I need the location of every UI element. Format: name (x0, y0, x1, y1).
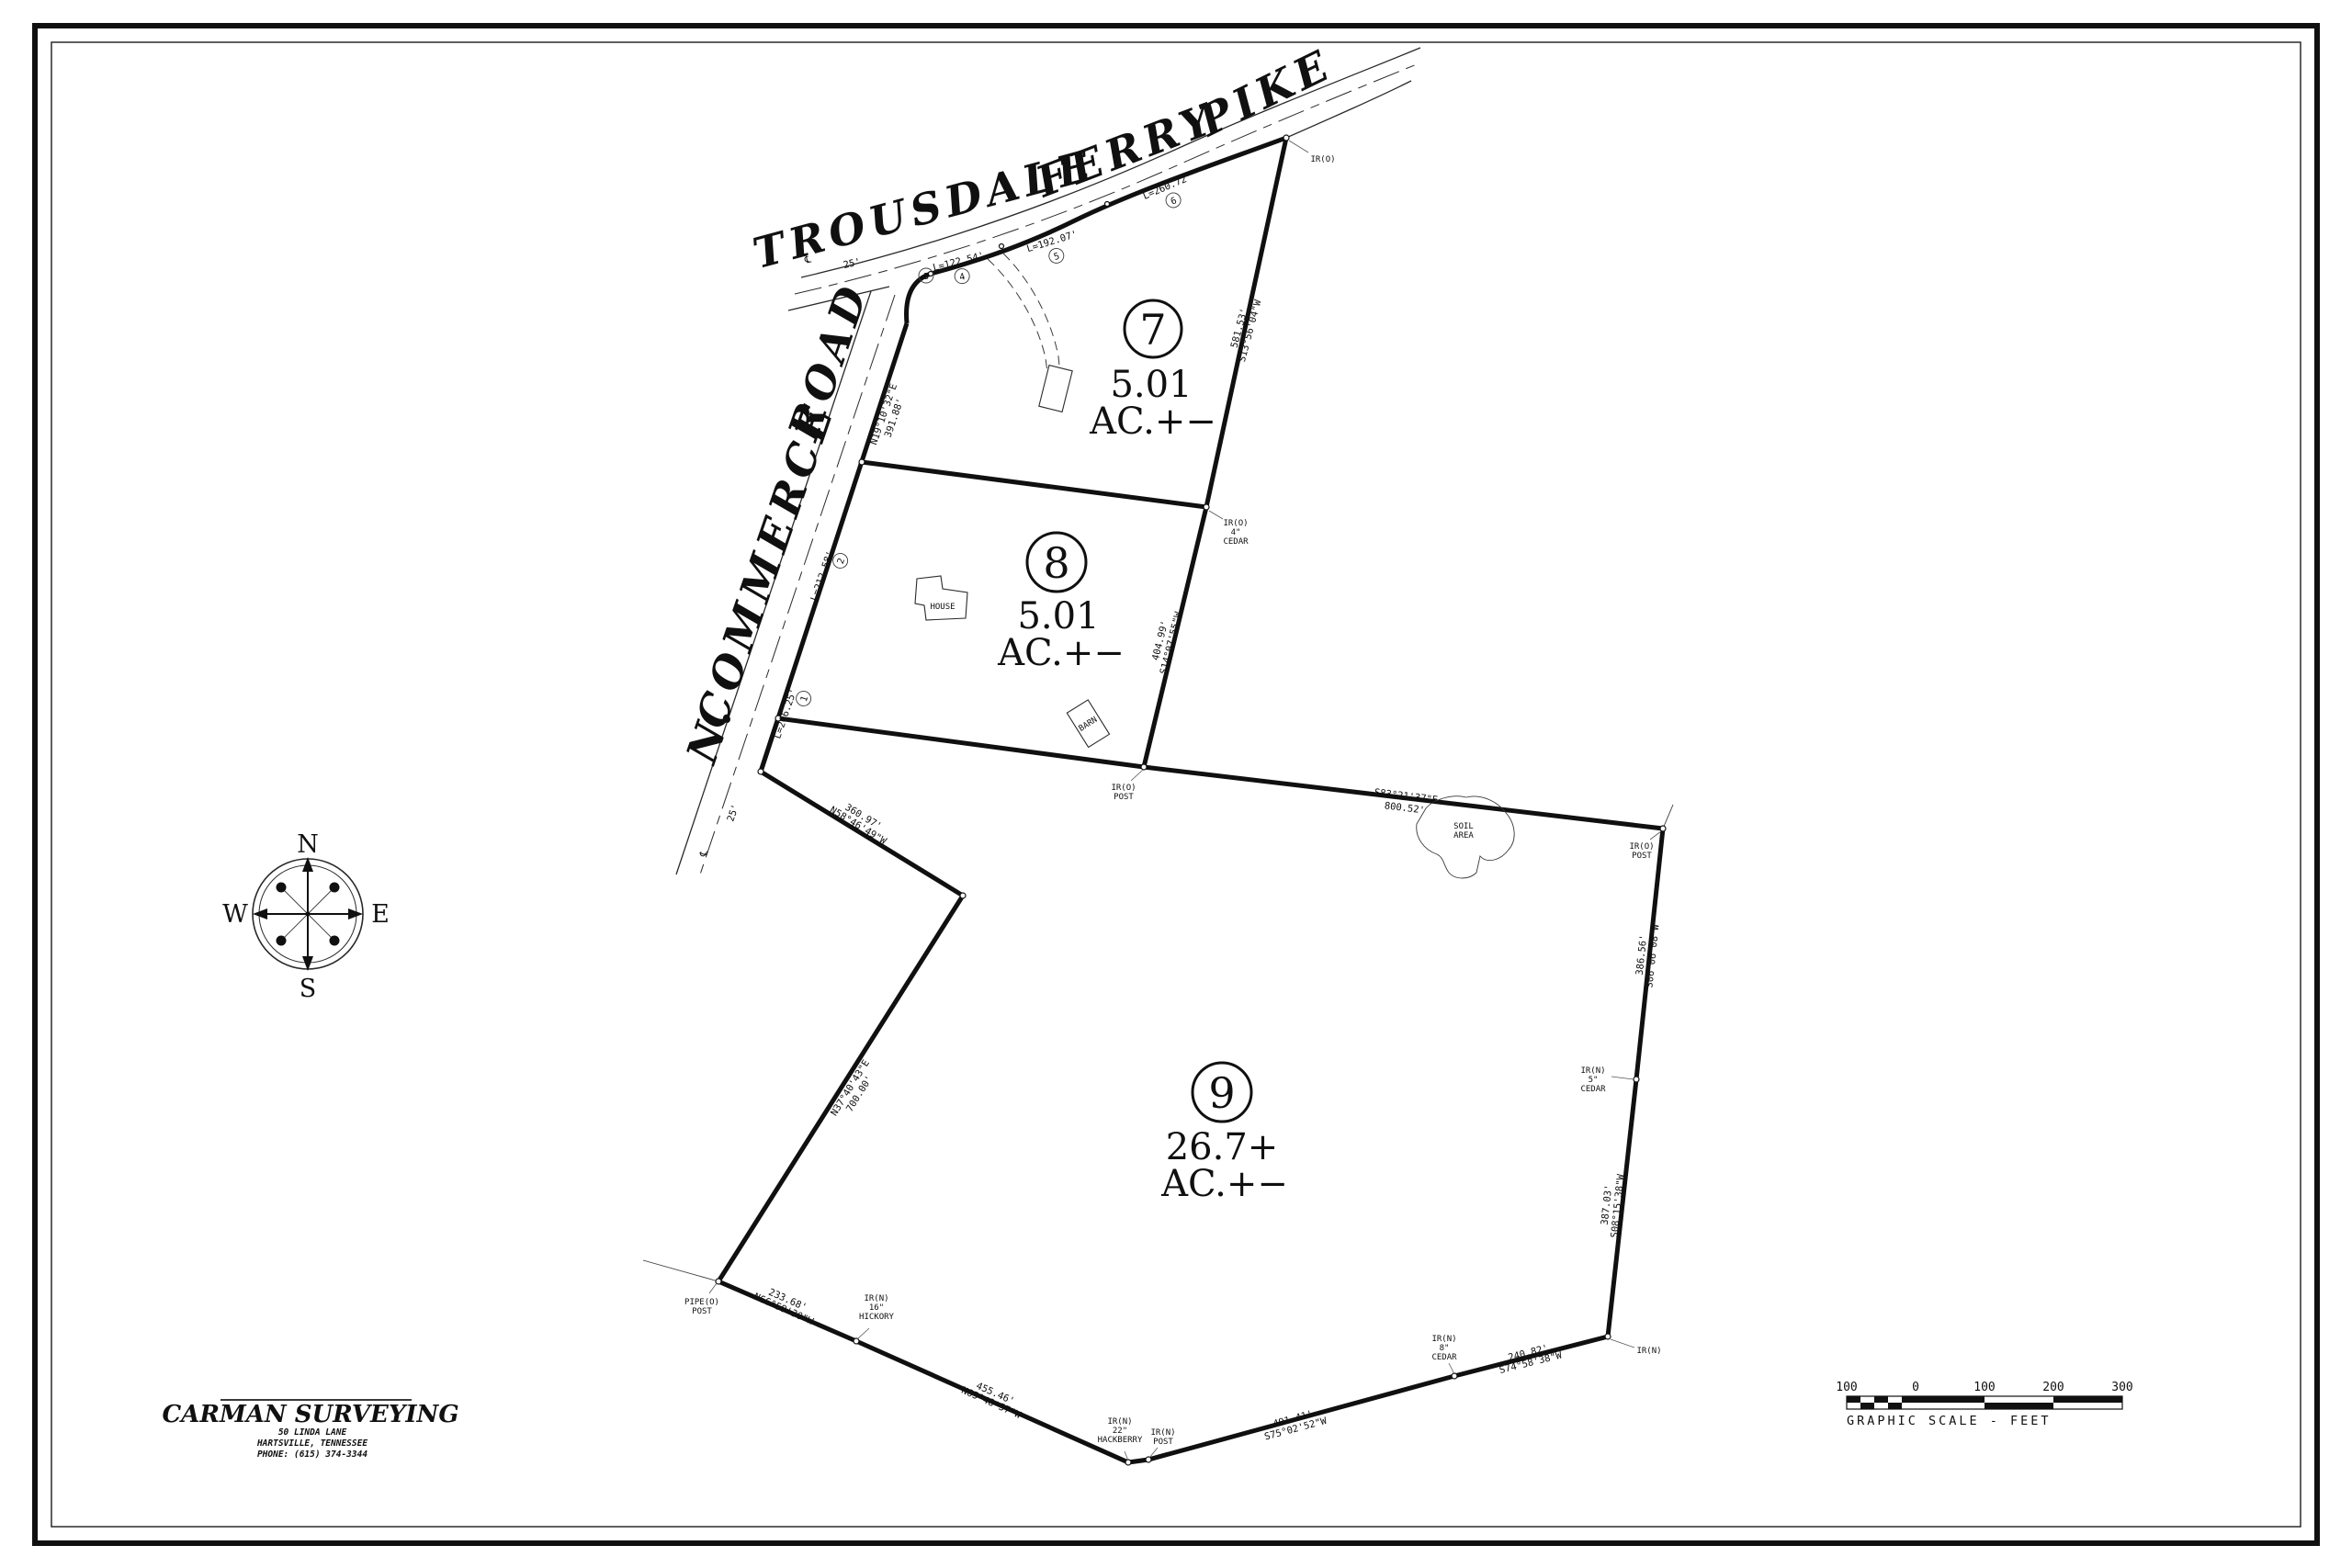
marker-text-1: IR(O) (1111, 784, 1136, 793)
west-arrow (253, 908, 267, 919)
scale-tick-100: 100 (1973, 1381, 1995, 1394)
marker-lot9-ne-post: IR(O) POST (1629, 831, 1661, 861)
inner-border (51, 42, 2301, 1527)
marker-cedar8: IR(N) 8" CEDAR (1431, 1335, 1457, 1374)
soil-area-label-line1: SOIL (1453, 822, 1474, 831)
bearing-lot9-east-upper: 386.56' S06°06'08"W (1633, 922, 1661, 988)
outer-border (35, 26, 2317, 1543)
marker-text-1: IR(N) (864, 1294, 888, 1303)
lot9-number: 9 (1208, 1068, 1235, 1118)
marker-text-2: 8" (1440, 1344, 1450, 1353)
house-building: HOUSE (915, 576, 967, 620)
curve5-number: 5 (1053, 252, 1061, 263)
surveyor-address1: 50 LINDA LANE (278, 1427, 347, 1438)
title-block: CARMAN SURVEYING 50 LINDA LANE HARTSVILL… (162, 1400, 458, 1460)
marker-pipe-post: PIPE(O) POST (684, 1283, 719, 1316)
bearing-lot9-top: S83°21'37"E 800.52' (1373, 787, 1439, 818)
soil-area-label-line2: AREA (1453, 831, 1474, 840)
marker-text-2: 22" (1113, 1427, 1127, 1436)
graphic-scale: 100 0 100 200 300 GRAPHIC SCALE - FEET (1836, 1381, 2132, 1428)
marker-text-3: CEDAR (1431, 1353, 1457, 1362)
row-width-label-pike: 25' (842, 256, 862, 271)
scale-caption: GRAPHIC SCALE - FEET (1847, 1414, 2052, 1428)
marker-text-1: IR(O) (1223, 519, 1248, 528)
lot7-area-suffix: AC.+− (1089, 400, 1216, 443)
marker-text-3: HACKBERRY (1098, 1436, 1143, 1445)
marker-text-2: 4" (1231, 528, 1241, 537)
scale-tick-300: 300 (2111, 1381, 2132, 1394)
n-commerce-road (676, 291, 895, 880)
plat-drawing: HOUSE BARN SOIL AREA TROUSDALE FERRY PIK… (0, 0, 2352, 1568)
marker-text-2: POST (1114, 793, 1134, 802)
curve3-number: 3 (923, 272, 929, 282)
bearing-lot9-southwest-upper: 233.68' N66°59'30"W (752, 1282, 820, 1328)
curve1-length: L=206.25' (772, 687, 799, 740)
bearing-lot9-southwest-lower: 455.46' N65°48'57"W (960, 1376, 1027, 1422)
marker-text-3: CEDAR (1223, 537, 1249, 547)
row-width-label-road: 25' (725, 803, 741, 823)
compass-w: W (222, 900, 248, 929)
surveyor-company: CARMAN SURVEYING (162, 1401, 458, 1428)
marker-text-1: PIPE(O) (684, 1298, 719, 1307)
marker-text-3: HICKORY (859, 1313, 895, 1322)
marker-pike-corner: IR(O) (1289, 141, 1336, 164)
scale-tick-200: 200 (2042, 1381, 2064, 1394)
bearing-lot9-east-lower: 387.03' S08°15'38"W (1598, 1172, 1626, 1238)
lot7-label: 7 5.01 AC.+− (1089, 300, 1216, 443)
marker-text-1: IR(N) (1150, 1428, 1175, 1438)
marker-text-1: IR(N) (1431, 1335, 1456, 1344)
curve6-number: 6 (1170, 196, 1179, 207)
bearing-lot8-east: 404.99' S14°07'55"W (1148, 607, 1184, 675)
curve2-length: L=212.58' (808, 549, 836, 603)
bearing-lot9-south-east: 240.82' S74°58'38"W (1496, 1340, 1564, 1376)
lot8-number: 8 (1043, 538, 1069, 588)
scale-tick-0: 0 (1912, 1381, 1919, 1394)
lot7-number: 7 (1139, 305, 1166, 355)
compass-s: S (300, 975, 317, 1003)
marker-cedar5: IR(N) 5" CEDAR (1580, 1066, 1634, 1094)
marker-text-2: POST (692, 1307, 712, 1316)
marker-text-1: IR(N) (1107, 1417, 1132, 1427)
bearing-text: S06°06'08"W (1644, 923, 1661, 988)
bearing-lot7-east: 581.53' S13°56'04"W (1226, 295, 1263, 363)
lot7-lot8-division (862, 462, 1206, 507)
marker-text-2: POST (1632, 852, 1652, 861)
lot8-area-suffix: AC.+− (997, 632, 1125, 674)
curve-label-4: L=122.54' 4 (932, 250, 989, 289)
marker-text-2: 5" (1589, 1076, 1599, 1085)
curve-label-5: L=192.07' 5 (1025, 229, 1083, 270)
marker-text-2: 16" (869, 1303, 884, 1313)
marker-lot7-se-cedar: IR(O) 4" CEDAR (1209, 511, 1249, 547)
curve4-number: 4 (958, 272, 967, 283)
lot8-label: 8 5.01 AC.+− (997, 533, 1125, 674)
east-arrow (348, 908, 363, 919)
compass-n: N (297, 830, 319, 859)
marker-irn: IR(N) (1611, 1339, 1662, 1356)
extension-lines (643, 805, 1673, 1281)
surveyor-phone: PHONE: (615) 374-3344 (257, 1450, 367, 1460)
curve1-number: 1 (799, 694, 810, 703)
marker-text-1: IR(N) (1580, 1066, 1605, 1076)
survey-plat-sheet: HOUSE BARN SOIL AREA TROUSDALE FERRY PIK… (0, 0, 2352, 1568)
compass-rose: N S E W (222, 830, 390, 1003)
marker-text: IR(N) (1636, 1347, 1661, 1356)
scale-tick-neg100: 100 (1836, 1381, 1857, 1394)
shed-outline (1039, 366, 1072, 412)
house-label: HOUSE (930, 603, 955, 612)
barn-building: BARN (1067, 700, 1109, 748)
marker-hickory: IR(N) 16" HICKORY (857, 1294, 895, 1339)
compass-e: E (371, 900, 390, 929)
road-label-road: ROAD (778, 276, 879, 448)
marker-text-1: IR(O) (1629, 842, 1654, 852)
road-label-pike: PIKE (1190, 39, 1341, 146)
marker-text-2: POST (1153, 1438, 1173, 1447)
curve-label-2: L=212.58' 2 (808, 548, 850, 607)
lot9-label: 9 26.7+ AC.+− (1160, 1063, 1288, 1205)
marker-text: IR(O) (1310, 155, 1335, 164)
marker-text-3: CEDAR (1580, 1085, 1606, 1094)
curve2-number: 2 (836, 557, 847, 565)
lot9-area-suffix: AC.+− (1160, 1163, 1288, 1205)
lot7-driveway (988, 254, 1072, 412)
surveyor-address2: HARTSVILLE, TENNESSEE (256, 1438, 367, 1449)
marker-lot9-nw-post: IR(O) POST (1111, 770, 1143, 802)
